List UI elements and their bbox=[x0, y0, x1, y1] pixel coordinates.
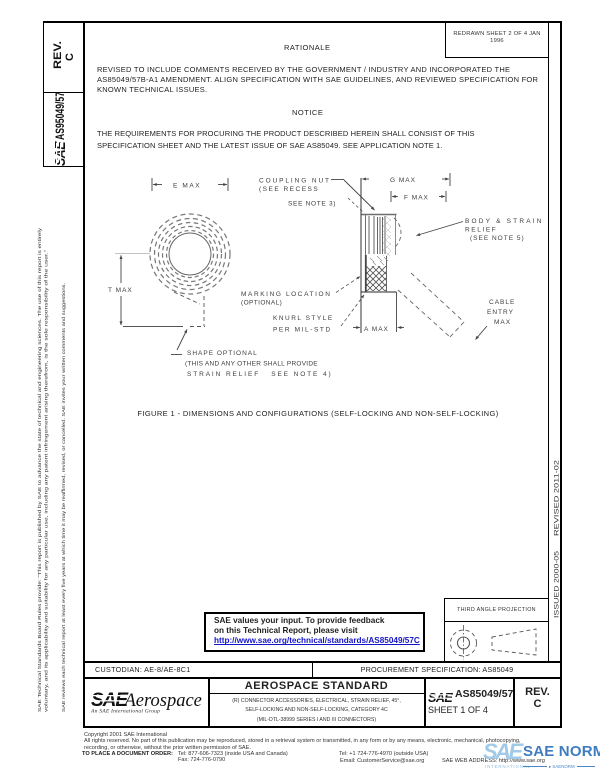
svg-text:REV.: REV. bbox=[52, 41, 64, 69]
svg-text:RELIEF: RELIEF bbox=[465, 227, 497, 234]
svg-text:An SAE International Group: An SAE International Group bbox=[90, 709, 160, 715]
svg-text:SAE reviews each technical rep: SAE reviews each technical report at lea… bbox=[61, 283, 67, 712]
svg-text:E MAX: E MAX bbox=[173, 183, 201, 190]
svg-text:(OPTIONAL): (OPTIONAL) bbox=[241, 300, 282, 307]
svg-text:REVISED 2011-02: REVISED 2011-02 bbox=[554, 460, 561, 536]
svg-text:(SEE NOTE 5): (SEE NOTE 5) bbox=[470, 235, 525, 242]
svg-text:voluntary, and its applicabili: voluntary, and its applicability and sui… bbox=[44, 250, 50, 712]
svg-text:ENTRY: ENTRY bbox=[487, 309, 514, 316]
svg-text:C: C bbox=[64, 53, 76, 61]
svg-text:SAE Technical Standards Board: SAE Technical Standards Board Rules prov… bbox=[37, 227, 43, 712]
svg-text:CABLE: CABLE bbox=[489, 299, 515, 306]
svg-text:SEE NOTE 3): SEE NOTE 3) bbox=[288, 201, 336, 208]
svg-text:MARKING LOCATION: MARKING LOCATION bbox=[241, 291, 332, 298]
svg-text:BODY & STRAIN: BODY & STRAIN bbox=[465, 218, 544, 225]
svg-text:A MAX: A MAX bbox=[364, 326, 389, 333]
svg-text:G MAX: G MAX bbox=[390, 177, 416, 184]
svg-text:STRAIN RELIEF SEE NOTE 4): STRAIN RELIEF SEE NOTE 4) bbox=[187, 371, 333, 378]
svg-text:KNURL STYLE: KNURL STYLE bbox=[273, 315, 334, 322]
svg-text:T MAX: T MAX bbox=[108, 287, 133, 294]
svg-text:MAX: MAX bbox=[494, 319, 511, 326]
svg-text:(THIS AND ANY OTHER SHALL PROV: (THIS AND ANY OTHER SHALL PROVIDE bbox=[185, 361, 318, 368]
svg-text:SHAPE OPTIONAL: SHAPE OPTIONAL bbox=[187, 350, 258, 357]
svg-text:PER MIL-STD: PER MIL-STD bbox=[273, 327, 332, 334]
svg-text:F MAX: F MAX bbox=[404, 195, 429, 202]
svg-text:ISSUED 2000-05: ISSUED 2000-05 bbox=[554, 551, 561, 618]
svg-text:COUPLING NUT: COUPLING NUT bbox=[259, 178, 331, 185]
svg-text:(SEE RECESS: (SEE RECESS bbox=[259, 186, 319, 193]
svg-text:AS95049/57: AS95049/57 bbox=[53, 92, 67, 140]
